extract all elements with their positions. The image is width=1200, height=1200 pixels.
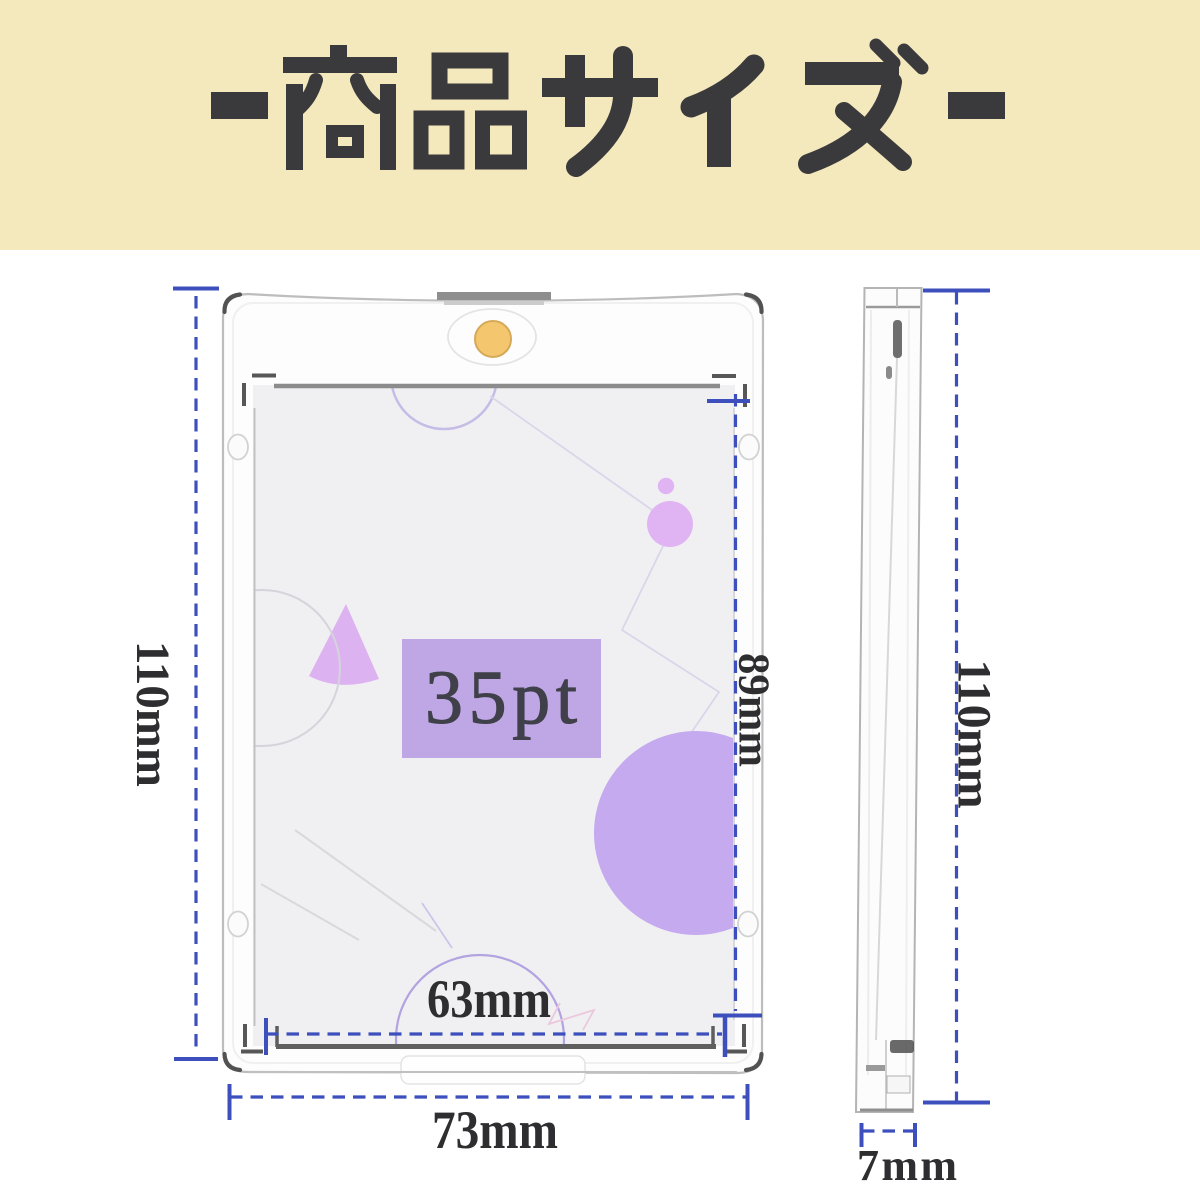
svg-text:7mm: 7mm [857,1141,957,1190]
svg-text:73mm: 73mm [432,1100,558,1160]
svg-text:110mm: 110mm [948,659,1001,808]
svg-text:110mm: 110mm [126,641,179,787]
svg-text:63mm: 63mm [427,969,551,1029]
svg-text:89mm: 89mm [730,653,779,767]
